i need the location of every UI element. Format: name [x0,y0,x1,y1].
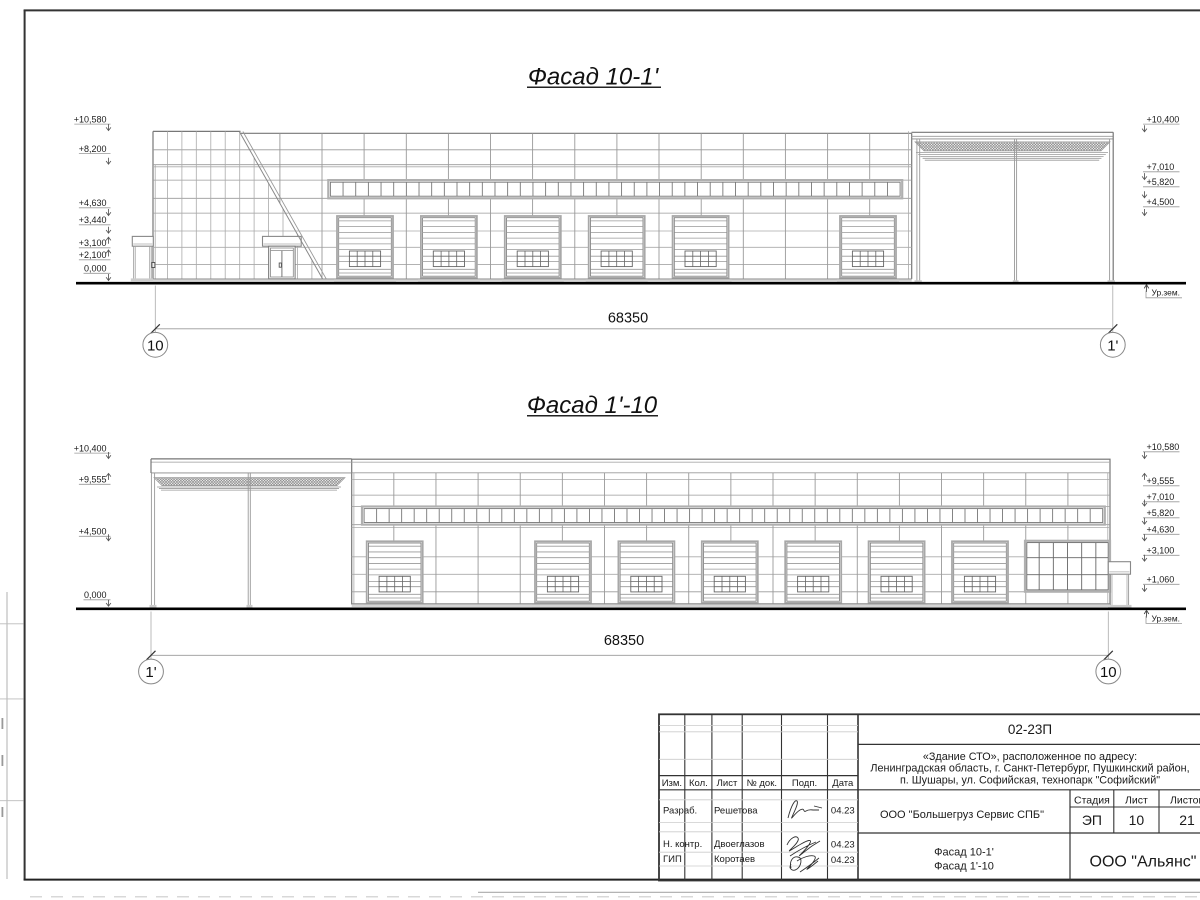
svg-text:+10,400: +10,400 [1147,114,1180,124]
svg-text:Лист: Лист [717,778,738,789]
svg-text:02-23П: 02-23П [1008,722,1052,737]
svg-text:+10,400: +10,400 [74,443,107,453]
svg-text:Изм.: Изм. [662,778,682,789]
svg-text:0,000: 0,000 [84,264,107,274]
svg-text:+4,500: +4,500 [79,527,107,537]
svg-text:1': 1' [1107,337,1118,354]
svg-text:10: 10 [1129,812,1145,828]
svg-text:+3,100: +3,100 [79,238,107,248]
svg-text:Коротаев: Коротаев [714,854,755,865]
svg-text:п. Шушары, ул. Софийская, техн: п. Шушары, ул. Софийская, технопарк "Соф… [900,774,1160,786]
svg-text:+5,820: +5,820 [1147,177,1175,187]
svg-text:+5,820: +5,820 [1147,508,1175,518]
svg-text:ГИП: ГИП [663,854,682,865]
svg-text:ООО "Альянс": ООО "Альянс" [1090,854,1197,871]
svg-text:0,000: 0,000 [84,590,107,600]
svg-text:Листов: Листов [1170,794,1200,806]
svg-text:68350: 68350 [608,311,648,327]
svg-text:Ур.зем.: Ур.зем. [1152,613,1180,623]
svg-text:04.23: 04.23 [831,855,855,866]
svg-text:+1,060: +1,060 [1147,575,1175,585]
svg-text:«Здание СТО», расположенное по: «Здание СТО», расположенное по адресу: [923,751,1137,763]
svg-text:+2,100: +2,100 [79,250,107,260]
svg-text:Двоеглазов: Двоеглазов [714,839,765,850]
svg-text:+10,580: +10,580 [1147,442,1180,452]
svg-text:Подп.: Подп. [792,778,817,789]
svg-text:ЭП: ЭП [1082,812,1102,828]
svg-text:ООО "Большегруз Сервис СПБ": ООО "Большегруз Сервис СПБ" [880,809,1044,821]
svg-text:Фасад 1'-10: Фасад 1'-10 [527,392,658,419]
svg-text:Стадия: Стадия [1074,794,1110,806]
svg-text:68350: 68350 [604,633,644,649]
svg-text:10: 10 [1100,664,1117,681]
svg-text:10: 10 [147,337,164,354]
svg-text:+4,630: +4,630 [1147,525,1175,535]
svg-text:1': 1' [145,664,156,681]
svg-text:Фасад 1'-10: Фасад 1'-10 [934,861,994,873]
svg-text:+4,500: +4,500 [1147,197,1175,207]
svg-text:+8,200: +8,200 [79,144,107,154]
svg-text:+9,555: +9,555 [79,475,107,485]
svg-text:Фасад 10-1': Фасад 10-1' [934,847,994,859]
svg-text:Ур.зем.: Ур.зем. [1152,288,1180,298]
svg-text:№ док.: № док. [747,778,777,789]
svg-text:21: 21 [1179,812,1195,828]
svg-text:Н. контр.: Н. контр. [663,839,702,850]
svg-text:04.23: 04.23 [831,839,855,850]
svg-text:+7,010: +7,010 [1147,162,1175,172]
svg-text:+3,440: +3,440 [79,215,107,225]
svg-text:Лист: Лист [1125,794,1148,806]
svg-text:Дата: Дата [832,778,854,789]
svg-text:Кол.: Кол. [689,778,708,789]
svg-text:+7,010: +7,010 [1147,492,1175,502]
svg-text:Разраб.: Разраб. [663,806,697,817]
svg-text:+10,580: +10,580 [74,114,107,124]
svg-text:Решетова: Решетова [714,806,758,817]
svg-text:Ленинградская область, г. Санк: Ленинградская область, г. Санкт-Петербур… [870,763,1189,775]
svg-text:+9,555: +9,555 [1147,476,1175,486]
svg-text:+3,100: +3,100 [1147,546,1175,556]
svg-text:04.23: 04.23 [831,806,855,817]
svg-text:+4,630: +4,630 [79,198,107,208]
